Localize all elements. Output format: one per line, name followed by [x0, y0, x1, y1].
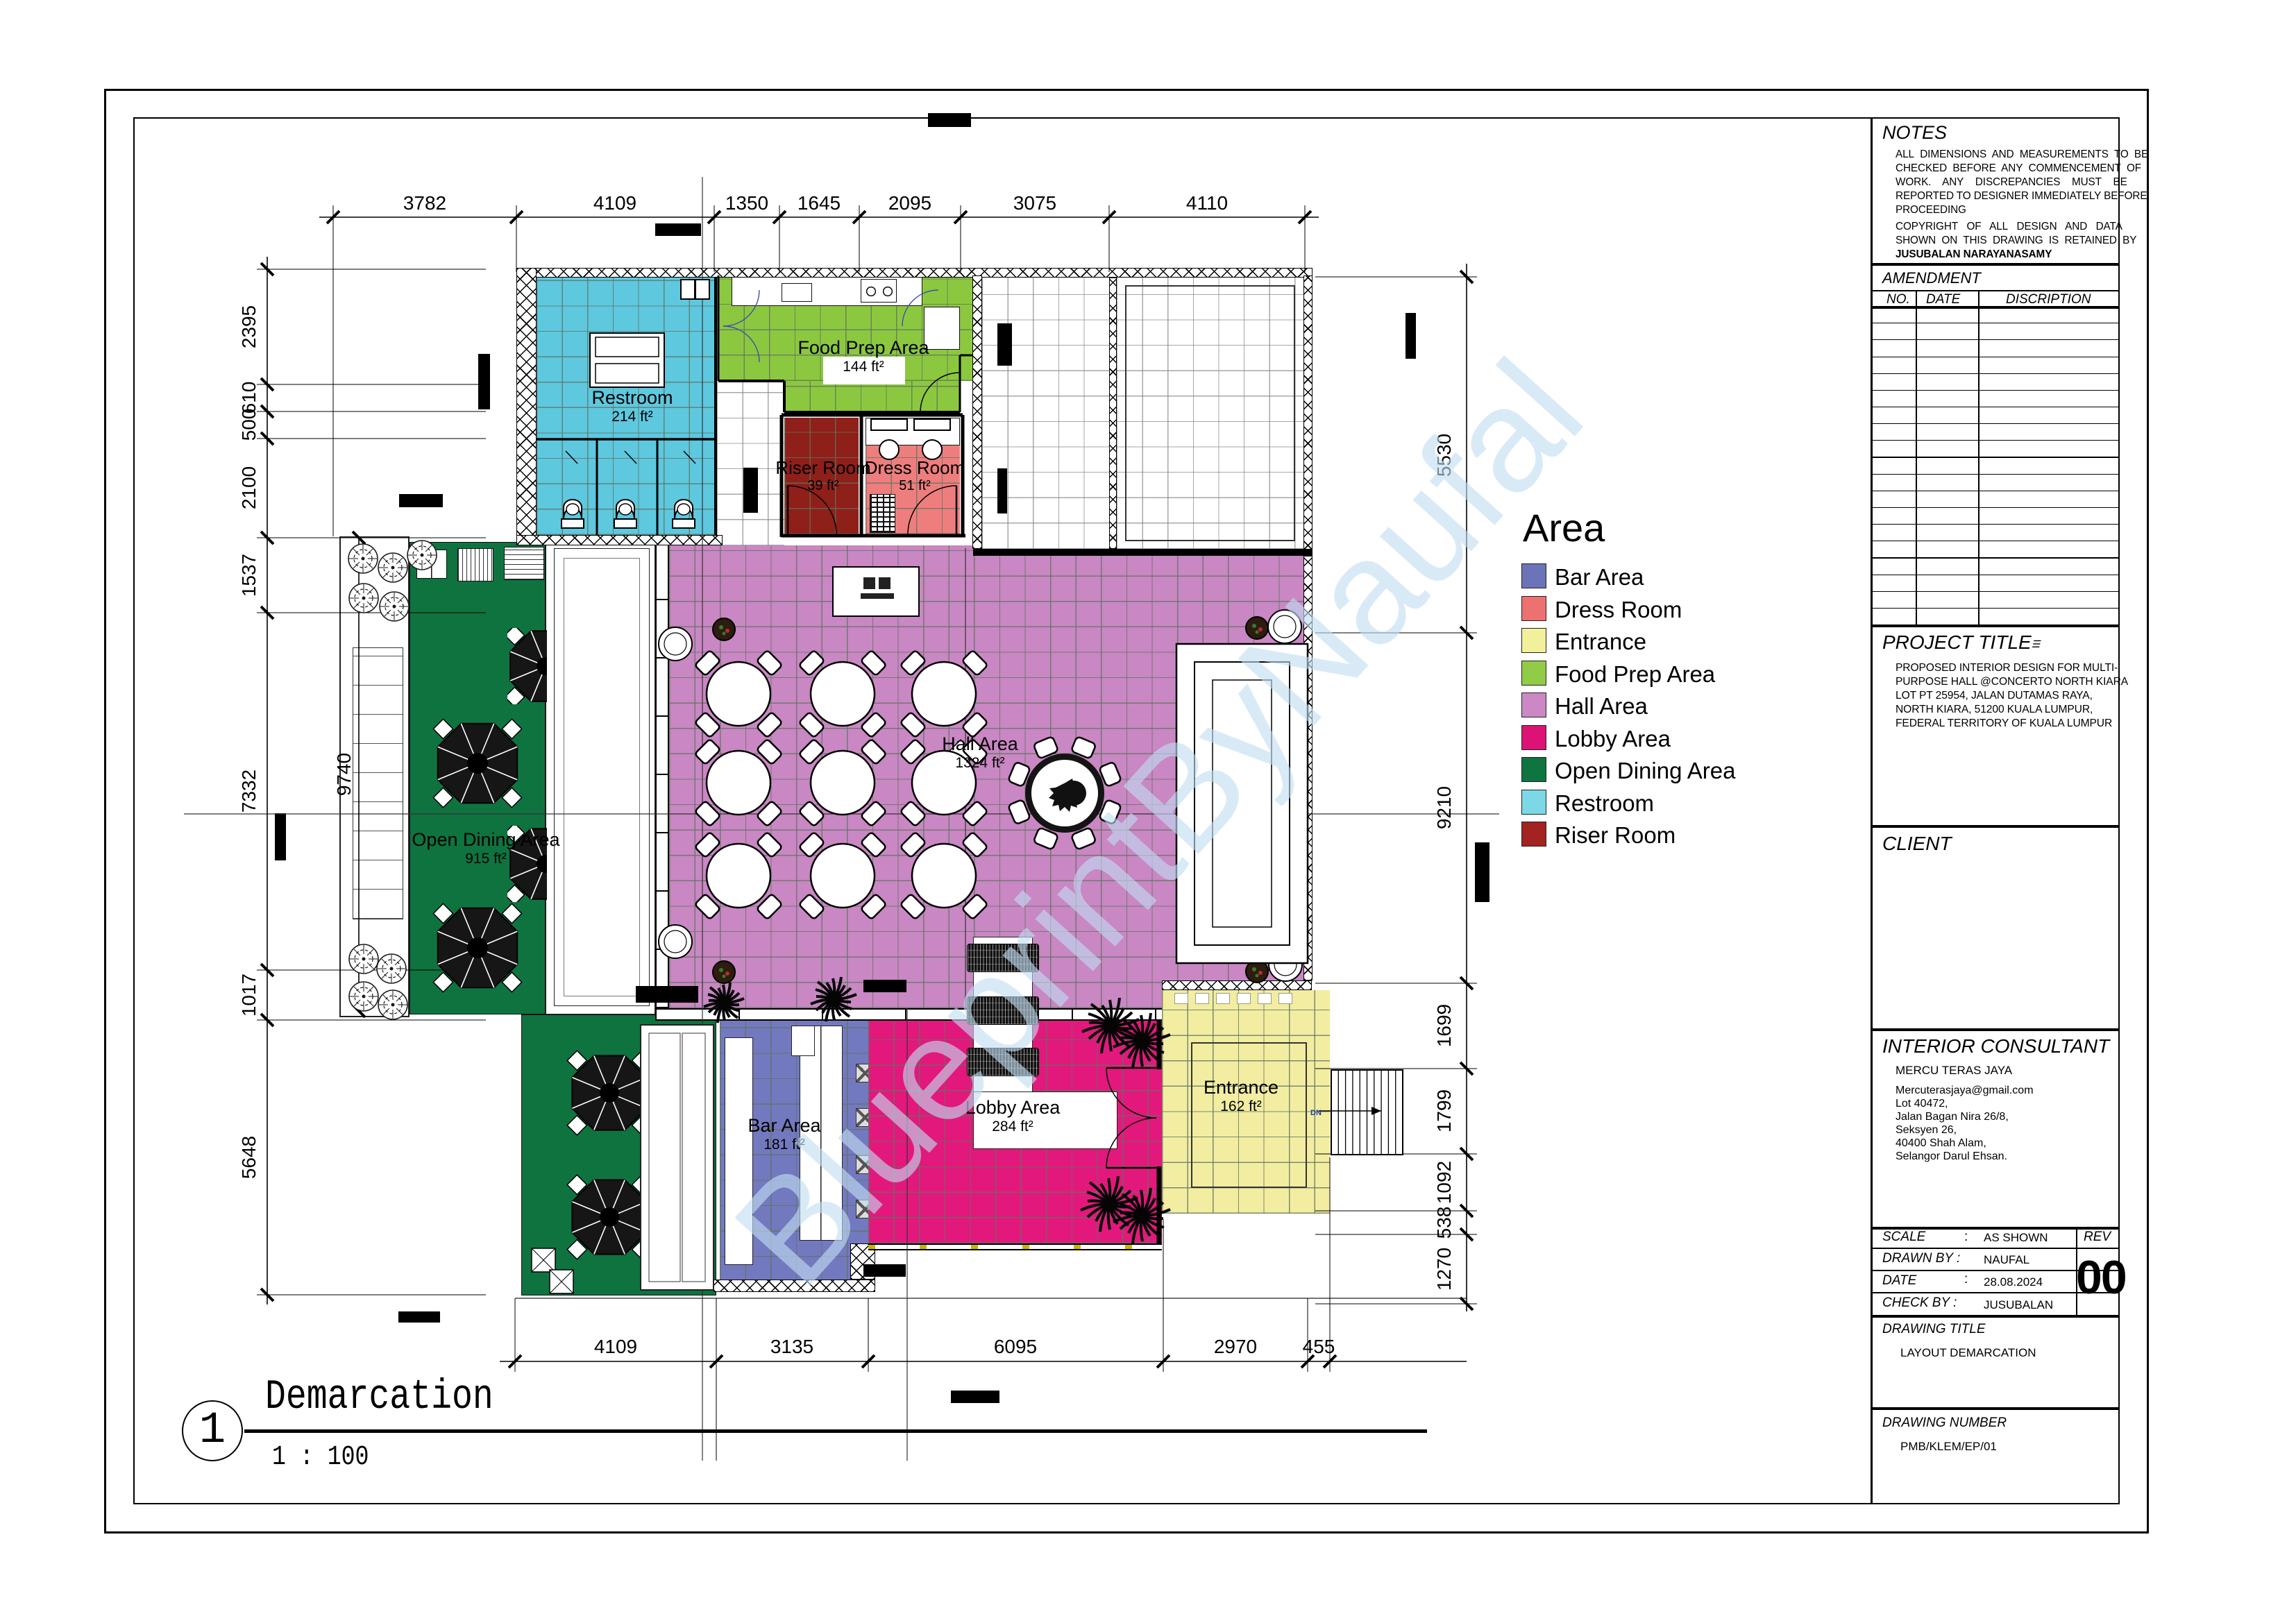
svg-text:4110: 4110: [1186, 192, 1228, 214]
svg-text:2095: 2095: [888, 192, 931, 214]
svg-text:1092: 1092: [1433, 1161, 1455, 1204]
svg-text:1699: 1699: [1433, 1004, 1455, 1047]
svg-text:3135: 3135: [770, 1336, 813, 1357]
svg-text:1645: 1645: [797, 192, 841, 214]
svg-text:6095: 6095: [994, 1336, 1037, 1357]
svg-text:2395: 2395: [238, 305, 260, 348]
svg-text:1537: 1537: [238, 554, 260, 597]
svg-text:1799: 1799: [1433, 1089, 1455, 1132]
svg-text:4109: 4109: [593, 192, 636, 214]
svg-text:1270: 1270: [1433, 1248, 1455, 1291]
svg-text:455: 455: [1303, 1336, 1335, 1357]
svg-text:500: 500: [238, 409, 260, 441]
svg-text:3075: 3075: [1013, 192, 1056, 214]
svg-text:4109: 4109: [594, 1336, 637, 1357]
svg-text:2970: 2970: [1214, 1336, 1257, 1357]
svg-text:1017: 1017: [238, 974, 260, 1017]
svg-text:3782: 3782: [403, 192, 446, 214]
svg-text:9740: 9740: [333, 753, 355, 796]
svg-text:2100: 2100: [238, 466, 260, 509]
svg-text:5648: 5648: [238, 1136, 260, 1179]
svg-text:5530: 5530: [1433, 434, 1455, 477]
svg-text:7332: 7332: [238, 770, 260, 813]
svg-text:538: 538: [1433, 1207, 1455, 1239]
svg-text:1350: 1350: [725, 192, 768, 214]
svg-text:9210: 9210: [1433, 786, 1455, 829]
